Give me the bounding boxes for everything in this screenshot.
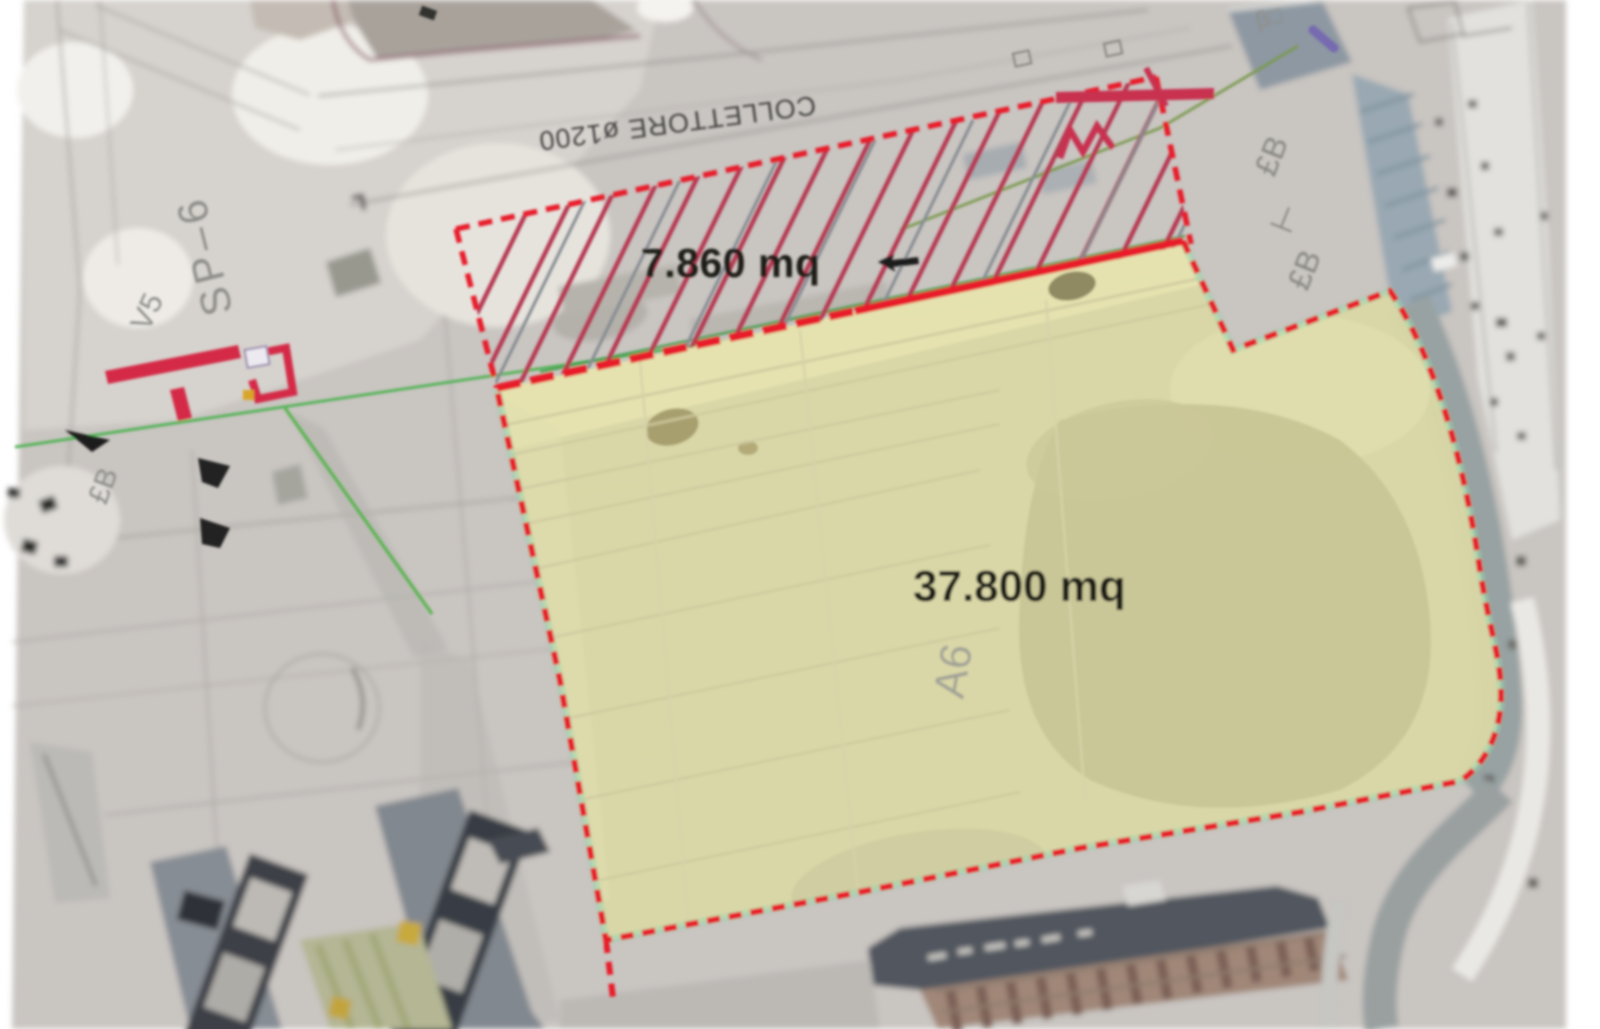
svg-text:7.860 mq: 7.860 mq xyxy=(641,240,821,286)
svg-text:A6: A6 xyxy=(925,640,983,702)
svg-text:37.800 mq: 37.800 mq xyxy=(913,562,1126,611)
